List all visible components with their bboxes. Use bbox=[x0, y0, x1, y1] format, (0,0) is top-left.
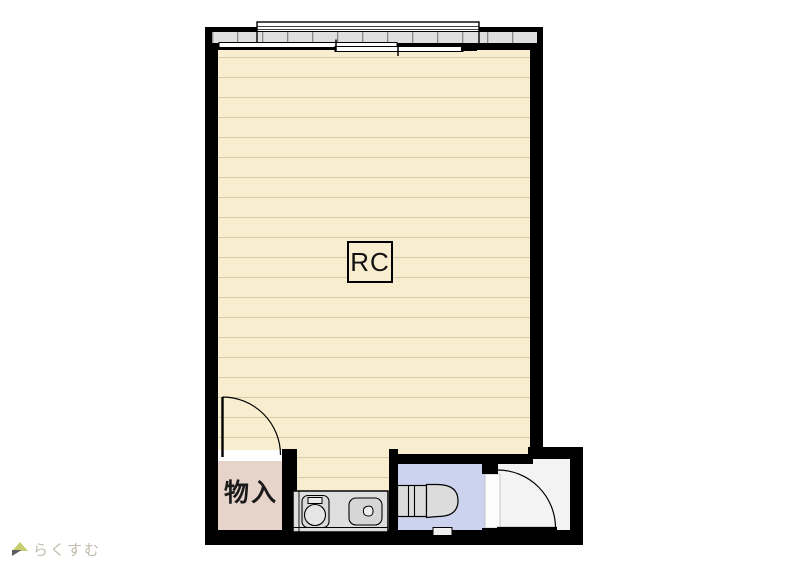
structure-type-label: RC bbox=[347, 241, 393, 283]
kitchen-counter bbox=[293, 491, 388, 532]
floorplan-image: RC 物入 らくすむ bbox=[0, 0, 785, 566]
toilet-door-opening bbox=[485, 474, 500, 528]
watermark-logo: らくすむ bbox=[12, 540, 101, 558]
balcony-railing bbox=[212, 22, 537, 44]
watermark-text: らくすむ bbox=[33, 539, 101, 560]
entrance-floor bbox=[498, 458, 572, 533]
stove-burner bbox=[302, 496, 329, 528]
house-icon bbox=[12, 542, 28, 556]
sink bbox=[349, 498, 382, 525]
storage-room-label: 物入 bbox=[219, 473, 283, 509]
toilet-step bbox=[433, 528, 452, 536]
floorplan-drawing bbox=[0, 0, 785, 566]
